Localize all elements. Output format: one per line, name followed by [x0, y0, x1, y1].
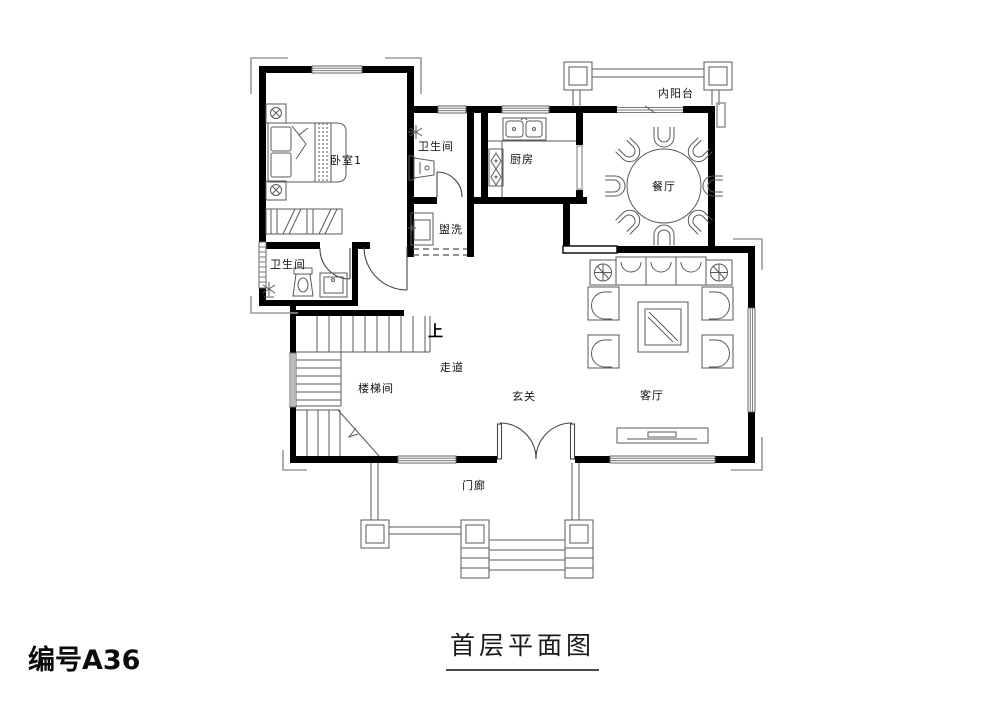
bedroom-door [364, 247, 407, 290]
label-corridor: 走道 [440, 360, 464, 374]
label-living: 客厅 [640, 388, 664, 402]
floor-plan-svg: 卧室1 卫生间 卫生间 盥洗 厨房 餐厅 客厅 玄关 走道 楼梯间 门廊 内阳台… [0, 0, 1000, 707]
pilasters [251, 58, 762, 470]
wash-opening [413, 249, 467, 255]
label-kitchen: 厨房 [510, 153, 534, 166]
label-bathroom-top: 卫生间 [418, 139, 454, 153]
label-stairs-up: 上 [428, 322, 443, 340]
bathroom-top-door [437, 172, 462, 197]
entry-double-door [498, 423, 575, 459]
kitchen-passage [577, 146, 582, 189]
living-furniture [588, 257, 733, 443]
label-balcony: 内阳台 [658, 86, 694, 100]
tv-cabinet [617, 428, 708, 443]
windows [259, 66, 755, 463]
label-entry: 玄关 [512, 389, 536, 403]
label-bedroom: 卧室1 [330, 153, 362, 167]
label-porch: 门廊 [462, 478, 486, 492]
walls [259, 66, 755, 463]
window-bedroom-left [259, 242, 266, 288]
label-dining: 餐厅 [652, 179, 676, 193]
wardrobe [266, 209, 342, 234]
window-stairwell [290, 353, 296, 407]
window-bedroom-top [312, 66, 362, 73]
label-bathroom-bottom: 卫生间 [270, 257, 306, 271]
window-living-front [610, 456, 715, 463]
bed [266, 104, 346, 200]
plan-title: 首层平面图 [446, 626, 599, 671]
sliding-door-balcony [617, 106, 683, 113]
bathroom-bottom-door [320, 248, 350, 279]
label-stairwell: 楼梯间 [358, 381, 394, 395]
floor-plan-page: 卧室1 卫生间 卫生间 盥洗 厨房 餐厅 客厅 玄关 走道 楼梯间 门廊 内阳台… [0, 0, 1000, 707]
plan-number: 编号A36 [28, 638, 140, 677]
window-kitchen [502, 106, 549, 113]
window-bathroom-top [438, 106, 466, 113]
window-living-right [748, 308, 755, 412]
balcony-structure [564, 62, 732, 107]
window-front-left [398, 456, 456, 463]
label-wash: 盥洗 [439, 223, 463, 236]
bathroom-bottom-fixtures [263, 268, 347, 297]
opening-beam [563, 246, 617, 253]
